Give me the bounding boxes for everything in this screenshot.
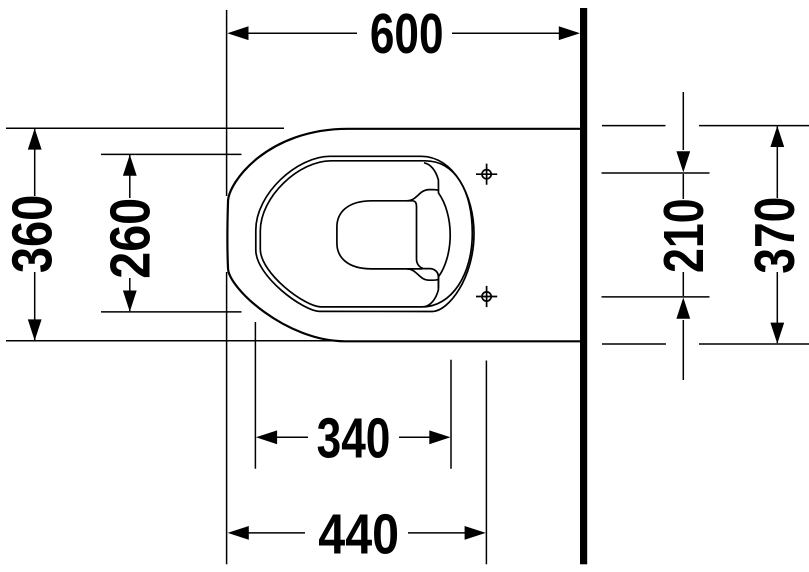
svg-text:340: 340 [317,406,391,470]
svg-text:440: 440 [318,503,399,567]
svg-text:360: 360 [1,195,64,273]
svg-text:370: 370 [742,197,806,274]
svg-text:210: 210 [652,198,715,273]
svg-text:260: 260 [99,198,163,279]
svg-text:600: 600 [370,1,444,65]
